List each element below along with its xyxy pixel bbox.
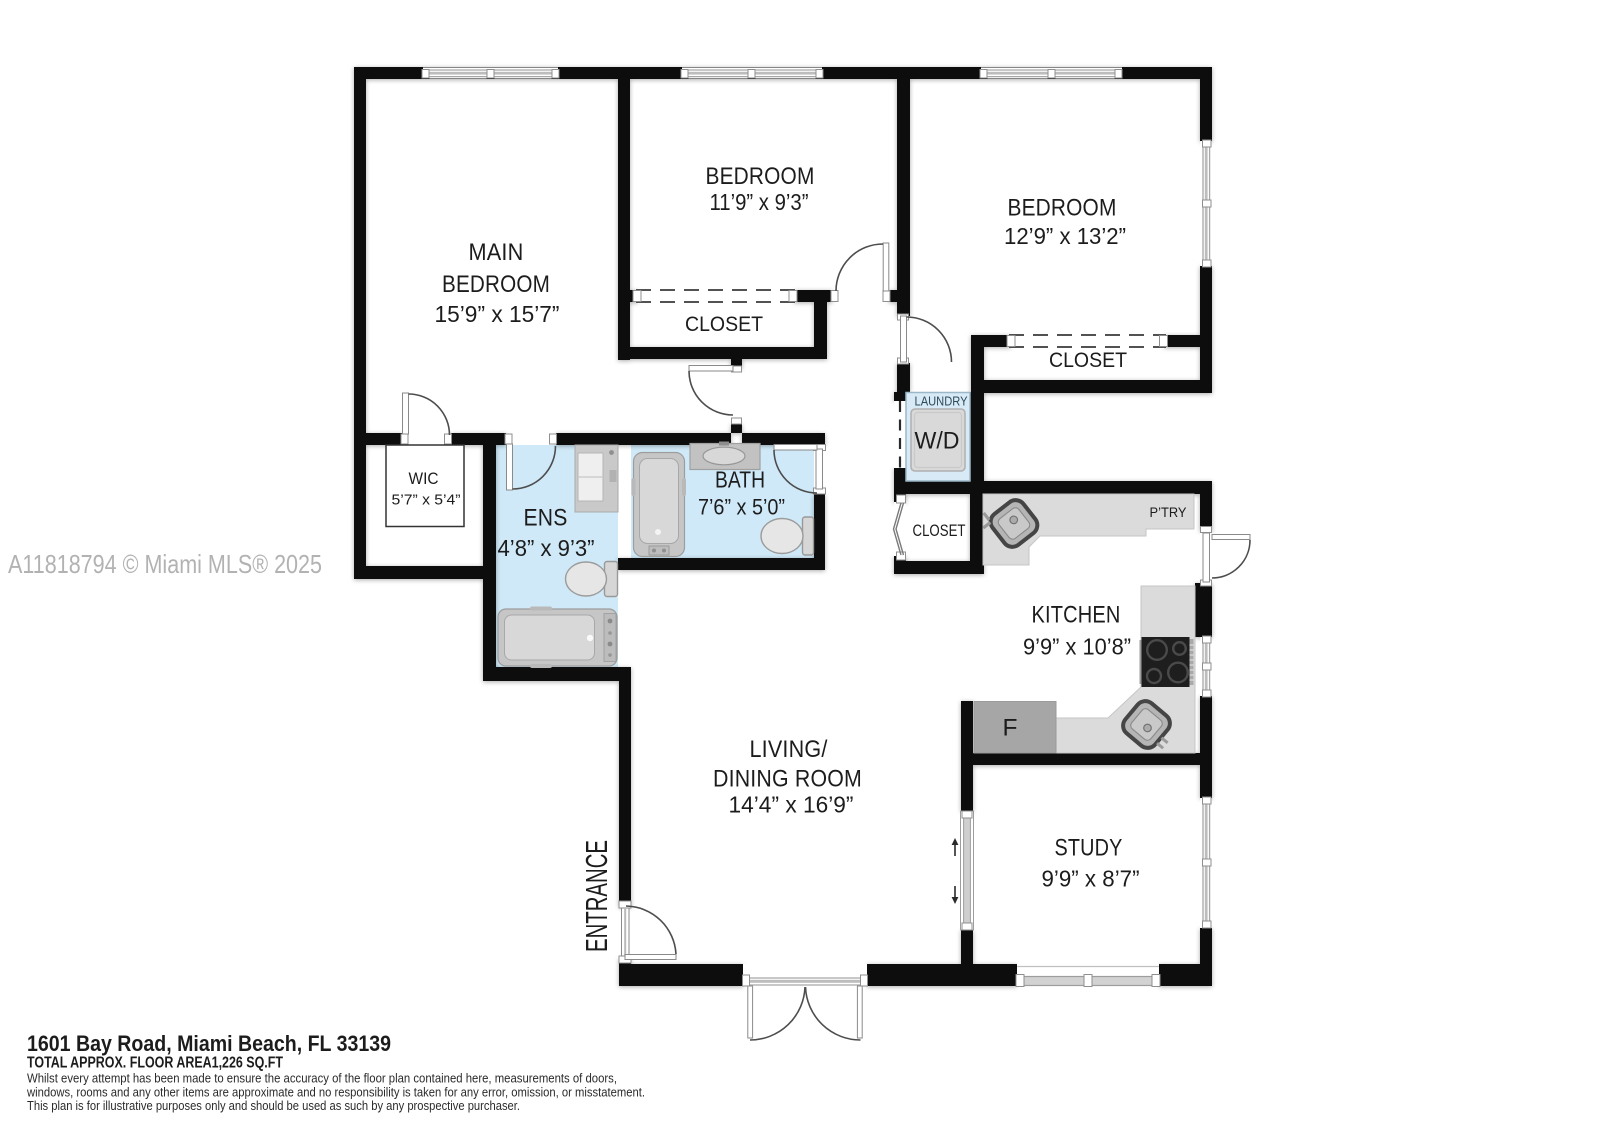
svg-text:15’9” x 15’7”: 15’9” x 15’7” (435, 301, 560, 327)
svg-text:14’4” x 16’9”: 14’4” x 16’9” (729, 792, 854, 818)
svg-text:windows, rooms and any other i: windows, rooms and any other items are a… (26, 1085, 645, 1099)
svg-text:11’9” x 9’3”: 11’9” x 9’3” (710, 189, 809, 215)
svg-text:MAIN: MAIN (469, 239, 524, 266)
svg-text:BATH: BATH (715, 467, 765, 493)
svg-text:DINING ROOM: DINING ROOM (713, 766, 862, 793)
svg-text:CLOSET: CLOSET (913, 522, 966, 540)
svg-text:7’6” x 5’0”: 7’6” x 5’0” (698, 495, 785, 520)
svg-text:CLOSET: CLOSET (685, 313, 763, 336)
svg-text:P’TRY: P’TRY (1150, 505, 1187, 520)
svg-text:12’9” x 13’2”: 12’9” x 13’2” (1004, 223, 1126, 249)
svg-text:A11818794 © Miami MLS® 2025: A11818794 © Miami MLS® 2025 (8, 549, 322, 579)
svg-text:This plan is for illustrative: This plan is for illustrative purposes o… (27, 1099, 520, 1113)
svg-text:STUDY: STUDY (1055, 835, 1123, 862)
svg-text:TOTAL APPROX. FLOOR AREA1,226: TOTAL APPROX. FLOOR AREA1,226 SQ.FT (27, 1055, 283, 1072)
svg-text:5’7” x 5’4”: 5’7” x 5’4” (392, 492, 461, 509)
svg-text:KITCHEN: KITCHEN (1032, 602, 1121, 629)
svg-text:F: F (1003, 715, 1018, 742)
svg-text:W/D: W/D (915, 428, 960, 455)
svg-text:1601 Bay Road, Miami Beach, FL: 1601 Bay Road, Miami Beach, FL 33139 (27, 1031, 391, 1056)
svg-text:9’9” x 10’8”: 9’9” x 10’8” (1023, 634, 1131, 660)
svg-text:4’8” x 9’3”: 4’8” x 9’3” (498, 535, 595, 561)
svg-text:Whilst every attempt has been: Whilst every attempt has been made to en… (27, 1072, 617, 1086)
svg-text:LAUNDRY: LAUNDRY (915, 394, 968, 409)
svg-text:ENS: ENS (524, 505, 568, 532)
svg-text:CLOSET: CLOSET (1049, 348, 1127, 372)
svg-text:ENTRANCE: ENTRANCE (579, 840, 614, 952)
svg-text:WIC: WIC (409, 469, 439, 488)
svg-text:BEDROOM: BEDROOM (706, 163, 815, 190)
svg-text:BEDROOM: BEDROOM (442, 271, 550, 298)
svg-text:LIVING/: LIVING/ (750, 736, 828, 763)
svg-text:BEDROOM: BEDROOM (1008, 195, 1117, 222)
svg-text:9’9” x 8’7”: 9’9” x 8’7” (1042, 866, 1140, 892)
